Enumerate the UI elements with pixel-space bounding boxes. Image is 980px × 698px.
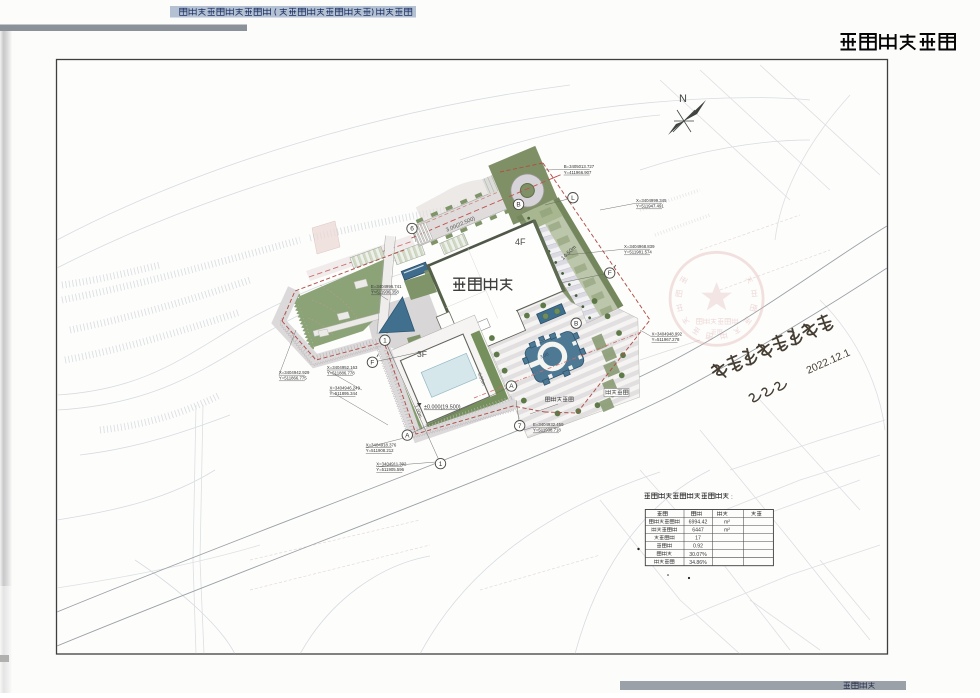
svg-text:6447: 6447 xyxy=(692,528,704,534)
svg-text:X=3404918.376: X=3404918.376 xyxy=(366,443,397,448)
svg-text:Y=511981.574: Y=511981.574 xyxy=(624,250,652,255)
svg-text:Y=511908.212: Y=511908.212 xyxy=(366,448,394,453)
svg-text:A: A xyxy=(509,383,514,390)
svg-text:A: A xyxy=(405,432,410,439)
svg-text:Y=511886.778: Y=511886.778 xyxy=(327,370,355,375)
svg-text:Y=511895.344: Y=511895.344 xyxy=(330,391,358,396)
svg-text::: : xyxy=(731,494,733,501)
svg-text:4F: 4F xyxy=(515,237,526,247)
svg-text:m²: m² xyxy=(724,520,730,526)
svg-text:F: F xyxy=(608,270,612,277)
svg-text:1: 1 xyxy=(439,461,443,468)
svg-text:6: 6 xyxy=(410,226,414,233)
svg-text:L: L xyxy=(571,195,575,202)
svg-text:F: F xyxy=(370,360,374,367)
svg-text:X=3404911.392: X=3404911.392 xyxy=(376,462,407,467)
svg-text:X=3404968.839: X=3404968.839 xyxy=(624,244,655,249)
svg-text:Y=511905.596: Y=511905.596 xyxy=(376,467,404,472)
svg-text:Y=511947.491: Y=511947.491 xyxy=(636,204,664,209)
svg-text:Y=511866.775: Y=511866.775 xyxy=(279,376,307,381)
svg-text:X=3404948.992: X=3404948.992 xyxy=(652,332,683,337)
svg-text:6994.42: 6994.42 xyxy=(689,520,708,526)
svg-text:0.92: 0.92 xyxy=(693,544,703,550)
svg-text:X=3404952.163: X=3404952.163 xyxy=(327,365,358,370)
svg-text:B: B xyxy=(516,202,520,209)
svg-text:E=3404932.459: E=3404932.459 xyxy=(533,422,564,427)
svg-text:B=3405013.727: B=3405013.727 xyxy=(564,164,595,169)
svg-text:30.07%: 30.07% xyxy=(689,552,707,558)
svg-text:X=3404946.249: X=3404946.249 xyxy=(330,386,361,391)
svg-text:Y=411966.907: Y=411966.907 xyxy=(564,170,592,175)
svg-text:Y=511938.718: Y=511938.718 xyxy=(533,428,561,433)
svg-text:N: N xyxy=(679,93,687,105)
svg-text:17: 17 xyxy=(695,536,701,542)
svg-text:X=3404942.929: X=3404942.929 xyxy=(279,370,310,375)
svg-text:7: 7 xyxy=(518,423,522,430)
svg-text:Y=511967.278: Y=511967.278 xyxy=(652,337,680,342)
svg-text:m²: m² xyxy=(724,528,730,534)
svg-text:X=3404999.345: X=3404999.345 xyxy=(636,198,667,203)
svg-text:3F: 3F xyxy=(417,349,427,359)
svg-text:34.86%: 34.86% xyxy=(689,560,707,566)
svg-text:B: B xyxy=(574,320,578,327)
svg-text:1: 1 xyxy=(383,337,387,344)
svg-text:E=3404996.741: E=3404996.741 xyxy=(371,284,402,289)
